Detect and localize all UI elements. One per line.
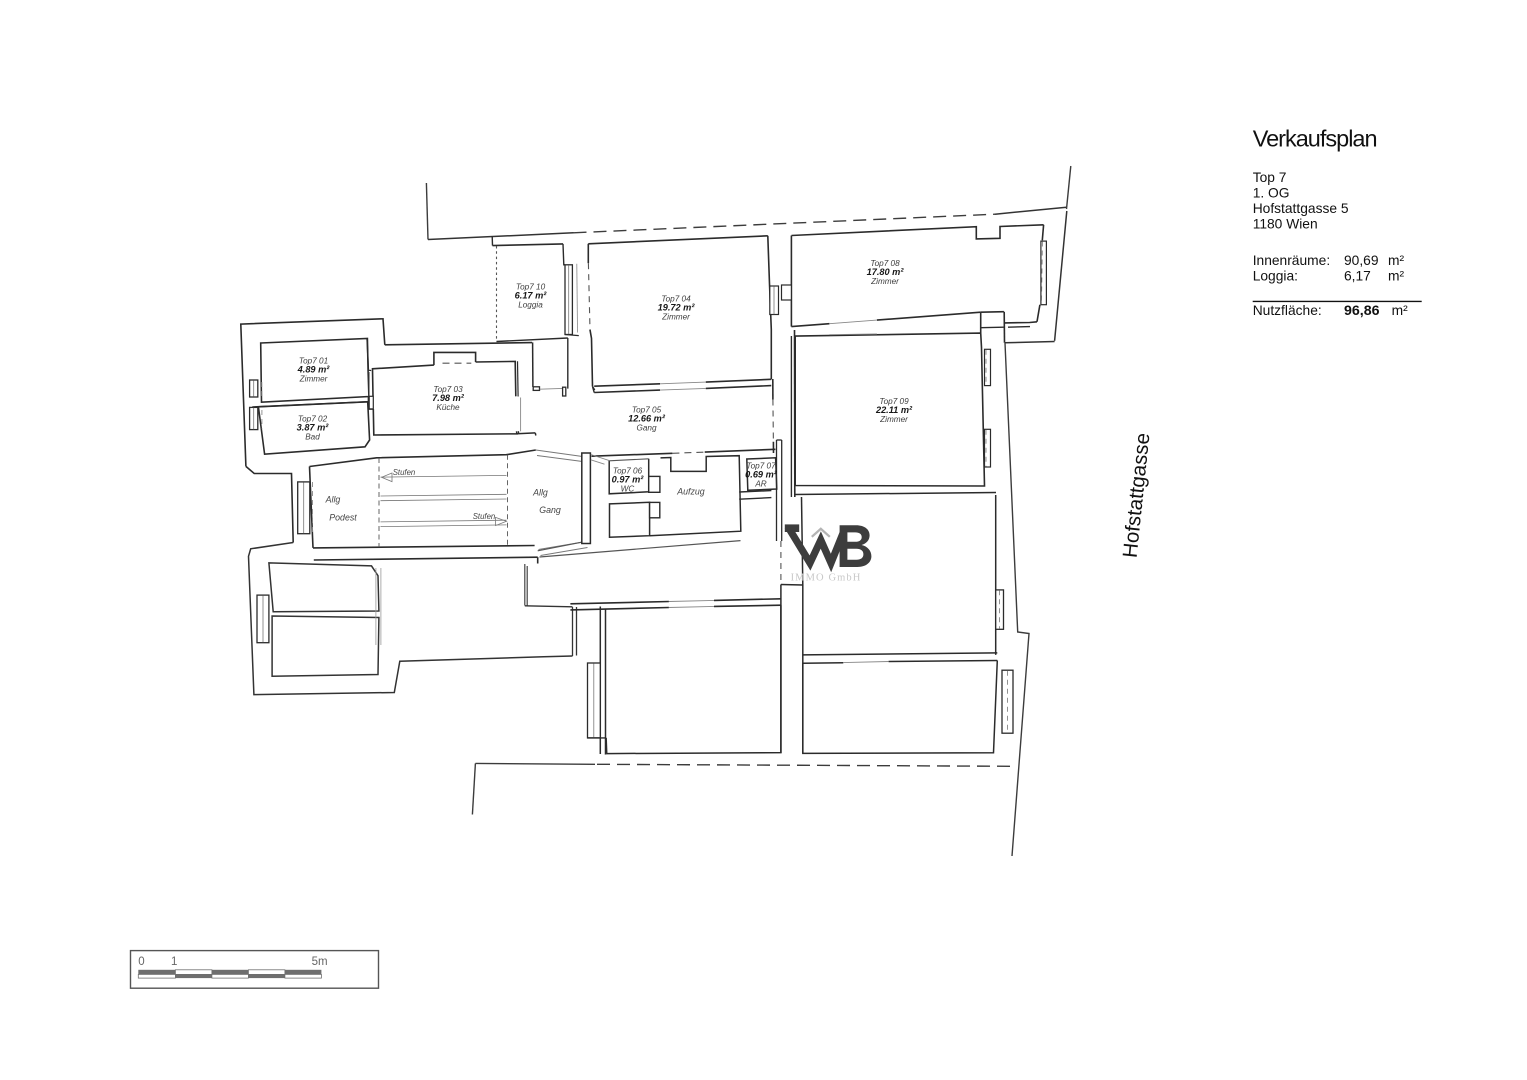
svg-text:Stufen: Stufen xyxy=(393,468,416,477)
svg-text:Zimmer: Zimmer xyxy=(870,277,899,286)
svg-text:96,86: 96,86 xyxy=(1344,303,1380,319)
svg-text:0: 0 xyxy=(138,956,144,968)
svg-text:4.89 m²: 4.89 m² xyxy=(297,365,331,375)
svg-text:Allg: Allg xyxy=(325,495,341,505)
svg-text:Aufzug: Aufzug xyxy=(676,487,704,497)
svg-text:7.98 m²: 7.98 m² xyxy=(432,393,465,403)
svg-text:Hofstattgasse 5: Hofstattgasse 5 xyxy=(1253,201,1349,216)
svg-text:AR: AR xyxy=(754,480,766,489)
svg-text:1. OG: 1. OG xyxy=(1253,186,1290,201)
svg-text:17.80 m²: 17.80 m² xyxy=(867,267,905,277)
svg-text:Top 7: Top 7 xyxy=(1253,170,1287,185)
svg-text:0.69 m²: 0.69 m² xyxy=(745,470,778,480)
svg-text:Loggia: Loggia xyxy=(518,301,543,310)
svg-text:Verkaufsplan: Verkaufsplan xyxy=(1253,126,1377,152)
svg-text:19.72 m²: 19.72 m² xyxy=(658,303,696,313)
svg-text:0.97 m²: 0.97 m² xyxy=(612,475,645,485)
svg-text:m²: m² xyxy=(1392,303,1408,318)
svg-text:Zimmer: Zimmer xyxy=(661,313,690,322)
svg-text:Stufen: Stufen xyxy=(473,512,496,521)
svg-text:Loggia:: Loggia: xyxy=(1253,269,1298,284)
svg-text:90,69: 90,69 xyxy=(1344,253,1379,268)
svg-text:m²: m² xyxy=(1388,253,1404,268)
svg-text:1180 Wien: 1180 Wien xyxy=(1253,217,1318,232)
svg-text:Bad: Bad xyxy=(305,433,320,442)
svg-text:22.11 m²: 22.11 m² xyxy=(875,405,913,415)
svg-text:IMMO GmbH: IMMO GmbH xyxy=(791,573,862,584)
svg-text:1: 1 xyxy=(171,956,177,968)
svg-text:Nutzfläche:: Nutzfläche: xyxy=(1253,303,1322,318)
svg-text:Innenräume:: Innenräume: xyxy=(1253,253,1330,268)
svg-text:m²: m² xyxy=(1388,269,1404,284)
svg-text:Allg: Allg xyxy=(532,488,548,498)
svg-text:12.66 m²: 12.66 m² xyxy=(628,414,666,424)
svg-text:Gang: Gang xyxy=(539,505,561,515)
svg-text:3.87 m²: 3.87 m² xyxy=(297,423,330,433)
svg-text:Zimmer: Zimmer xyxy=(879,415,908,424)
svg-text:6,17: 6,17 xyxy=(1344,269,1371,284)
svg-text:WC: WC xyxy=(621,485,635,494)
svg-text:Podest: Podest xyxy=(329,513,357,523)
svg-text:Zimmer: Zimmer xyxy=(299,375,328,384)
svg-text:Küche: Küche xyxy=(436,403,460,412)
svg-text:5m: 5m xyxy=(312,956,328,968)
svg-text:6.17 m²: 6.17 m² xyxy=(515,291,548,301)
svg-text:Gang: Gang xyxy=(636,424,656,433)
